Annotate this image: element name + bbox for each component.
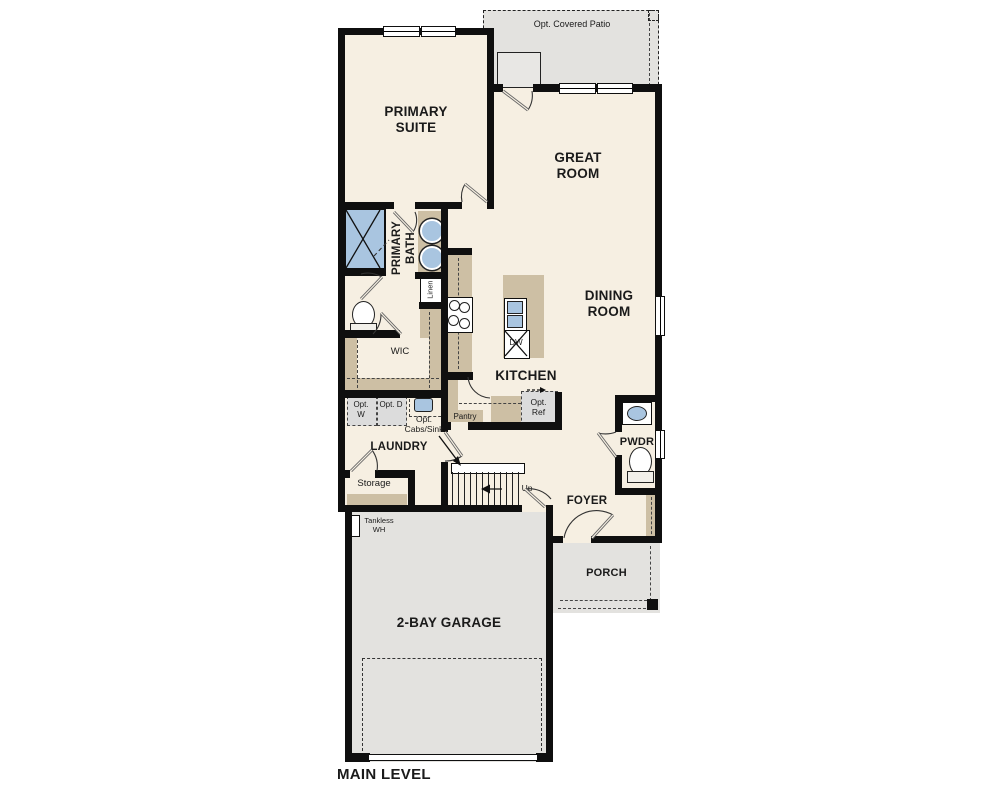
kitchen-label: KITCHEN — [466, 368, 586, 384]
wall — [345, 512, 352, 762]
foyer-label: FOYER — [552, 494, 622, 508]
wall — [494, 84, 503, 92]
porch-dash — [558, 608, 656, 609]
wall — [338, 202, 394, 209]
pantry-label: Pantry — [445, 412, 485, 422]
garage-apron-outline — [362, 658, 542, 756]
burner-icon — [459, 302, 470, 313]
garage-label: 2-BAY GARAGE — [389, 615, 509, 631]
wall — [555, 392, 562, 430]
burner-icon — [459, 318, 470, 329]
window — [655, 296, 665, 336]
primary-bath-label: PRIMARY BATH — [366, 210, 442, 286]
patio-step — [497, 52, 541, 88]
opt-ref-label: Opt. Ref — [525, 397, 552, 418]
laundry-label: LAUNDRY — [349, 440, 449, 454]
pwdr-sink-icon — [627, 406, 647, 421]
wic-shelf — [420, 309, 441, 338]
storage-shelf — [347, 494, 407, 505]
opt-sink-icon — [414, 398, 433, 412]
opt-cabs-sink-label: Opt. Cabs/Sink — [400, 414, 448, 435]
burner-icon — [448, 315, 459, 326]
dishwasher-label: DW — [502, 338, 530, 348]
patio-label: Opt. Covered Patio — [492, 19, 652, 30]
counter-dash — [459, 403, 521, 404]
sink-basin — [507, 301, 523, 314]
wall — [546, 505, 553, 762]
garage-door — [369, 754, 537, 761]
wall — [553, 536, 563, 543]
wall — [345, 505, 522, 512]
shelf-dash — [651, 497, 652, 539]
tankless-wh-label: Tankless WH — [358, 516, 400, 534]
shelf-dash — [357, 340, 358, 388]
wall — [655, 333, 662, 431]
wall — [615, 395, 622, 432]
window — [597, 83, 633, 94]
wall — [487, 28, 494, 209]
porch-dash — [560, 600, 652, 601]
wall — [533, 84, 560, 92]
linen-label: Linen — [416, 276, 444, 304]
wall — [375, 470, 411, 478]
sink-basin — [507, 315, 523, 328]
wall — [655, 84, 662, 297]
dining-room-label: DINING ROOM — [564, 288, 654, 321]
wall — [591, 536, 662, 543]
wic-shelf — [345, 378, 441, 390]
wall — [345, 753, 370, 762]
great-room-label: GREAT ROOM — [538, 150, 618, 183]
wic-label: WIC — [370, 346, 430, 358]
plan-title: MAIN LEVEL — [337, 766, 497, 784]
wall — [338, 470, 350, 478]
wall — [441, 462, 448, 507]
porch-label: PORCH — [553, 567, 660, 580]
opt-washer-label: Opt. W — [349, 400, 373, 420]
stairs-up-label: Up — [515, 483, 539, 493]
wall — [415, 202, 462, 209]
wall — [615, 488, 662, 495]
pwdr-label: PWDR — [607, 436, 667, 449]
wall — [338, 330, 400, 338]
porch-post — [647, 599, 658, 610]
opt-dryer-label: Opt. D — [379, 400, 403, 410]
wall — [655, 456, 662, 543]
storage-label: Storage — [344, 478, 404, 490]
wall — [446, 248, 472, 255]
window — [421, 26, 456, 37]
wall — [338, 390, 448, 398]
floorplan-canvas: Opt. Covered Patio PRIMARY SUITE GREAT R… — [0, 0, 1000, 800]
wall — [468, 422, 562, 430]
primary-suite-label: PRIMARY SUITE — [371, 104, 461, 137]
wall — [536, 753, 546, 762]
window — [383, 26, 420, 37]
shelf-dash — [347, 378, 439, 379]
toilet-tank-icon — [627, 471, 654, 483]
great-room-floor — [494, 84, 662, 205]
kitchen-back-counter — [491, 396, 521, 423]
wall — [615, 395, 662, 402]
wic-shelf — [429, 338, 441, 390]
window — [559, 83, 596, 94]
stair-treads — [452, 472, 521, 506]
